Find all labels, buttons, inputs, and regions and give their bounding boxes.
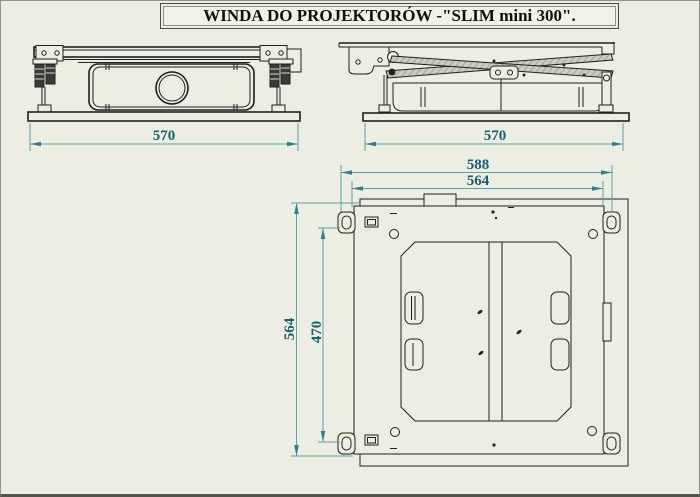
- scissor-mechanism: [386, 54, 613, 79]
- side-base-plate: [363, 113, 629, 121]
- top-tab: [424, 194, 456, 206]
- mounting-ear-bottom-left: [338, 433, 355, 454]
- mounting-ear-bottom-right: [603, 433, 620, 454]
- mounting-ear-top-right: [603, 212, 620, 233]
- dim-label-front-570: 570: [153, 128, 176, 144]
- right-lift-leg: [269, 59, 293, 112]
- page-title: WINDA DO PROJEKTORÓW -"SLIM mini 300".: [203, 6, 575, 26]
- projector-housing: [89, 64, 254, 110]
- dim-label-plan-564-top: 564: [467, 173, 490, 189]
- right-edge-tab: [603, 303, 611, 341]
- plan-view: [338, 194, 628, 466]
- dim-label-plan-564-left: 564: [282, 317, 298, 340]
- dim-label-plan-470: 470: [309, 321, 325, 344]
- side-housing: [393, 79, 604, 111]
- dim-front-width: 570: [30, 123, 298, 151]
- drawing-canvas: 570: [1, 1, 700, 497]
- front-base-plate: [28, 112, 300, 121]
- front-view: [28, 46, 301, 122]
- title-inner-frame: WINDA DO PROJEKTORÓW -"SLIM mini 300".: [163, 6, 616, 26]
- ceiling-bracket: [349, 47, 389, 74]
- side-view: [339, 43, 629, 121]
- drawing-sheet: 570: [0, 0, 700, 497]
- mounting-ear-top-left: [338, 212, 355, 233]
- lens-hole: [156, 72, 188, 104]
- dim-label-plan-588: 588: [467, 157, 490, 173]
- top-rail: [34, 47, 282, 57]
- dim-plan-inner-width: 564: [352, 173, 603, 207]
- dim-plan-inner-height: 470: [309, 228, 340, 442]
- main-plate: [354, 206, 604, 454]
- dim-label-side-570: 570: [484, 128, 507, 144]
- title-box: WINDA DO PROJEKTORÓW -"SLIM mini 300".: [160, 3, 619, 29]
- dim-side-width: 570: [365, 123, 623, 151]
- left-lift-leg: [33, 59, 57, 112]
